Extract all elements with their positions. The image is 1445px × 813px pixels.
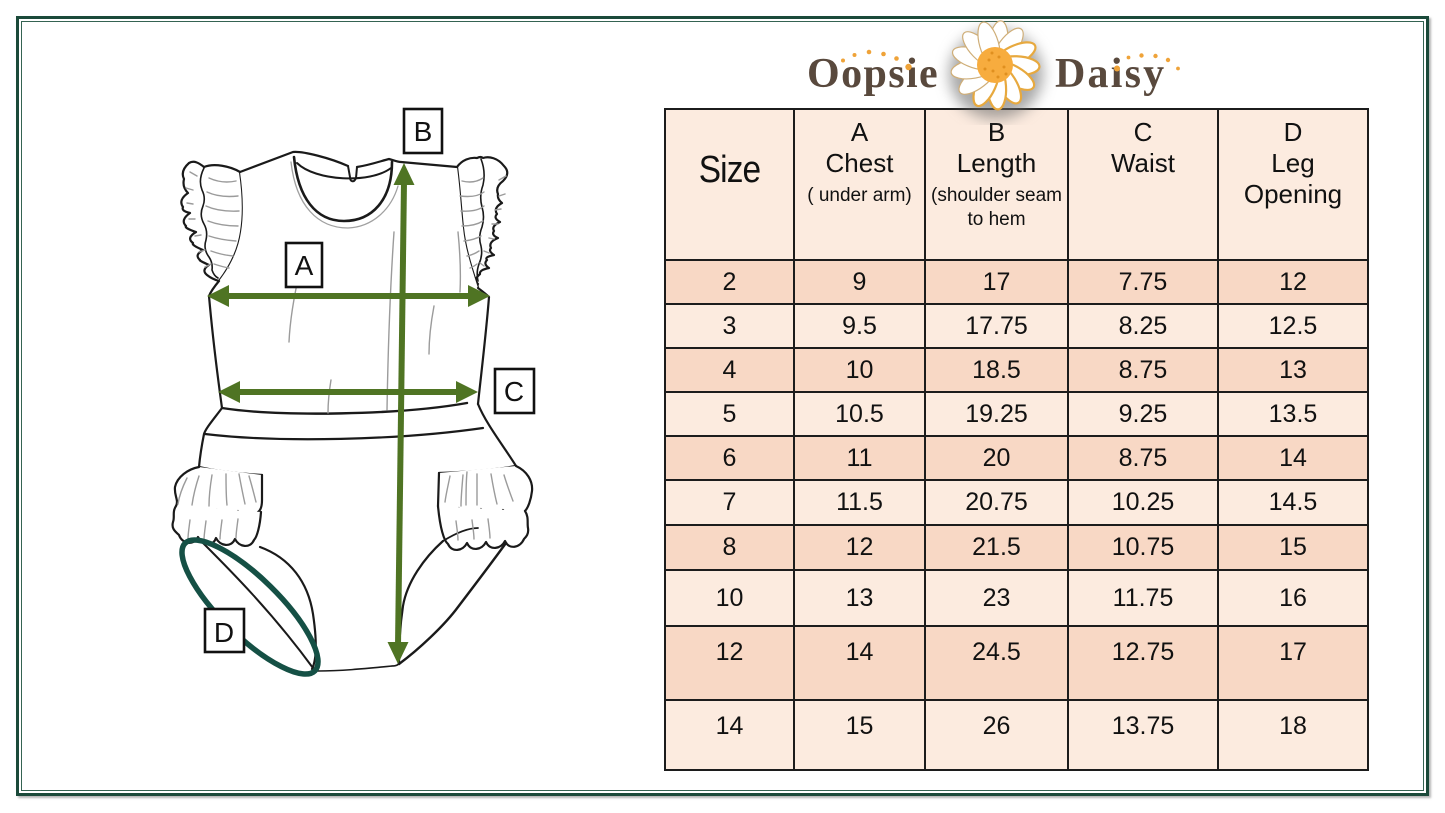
svg-text:C: C xyxy=(504,376,524,407)
svg-text:A: A xyxy=(295,250,314,281)
svg-text:Daisy: Daisy xyxy=(1055,51,1166,97)
svg-text:Oopsie: Oopsie xyxy=(807,51,939,97)
svg-text:D: D xyxy=(214,617,234,648)
svg-text:B: B xyxy=(414,116,433,147)
